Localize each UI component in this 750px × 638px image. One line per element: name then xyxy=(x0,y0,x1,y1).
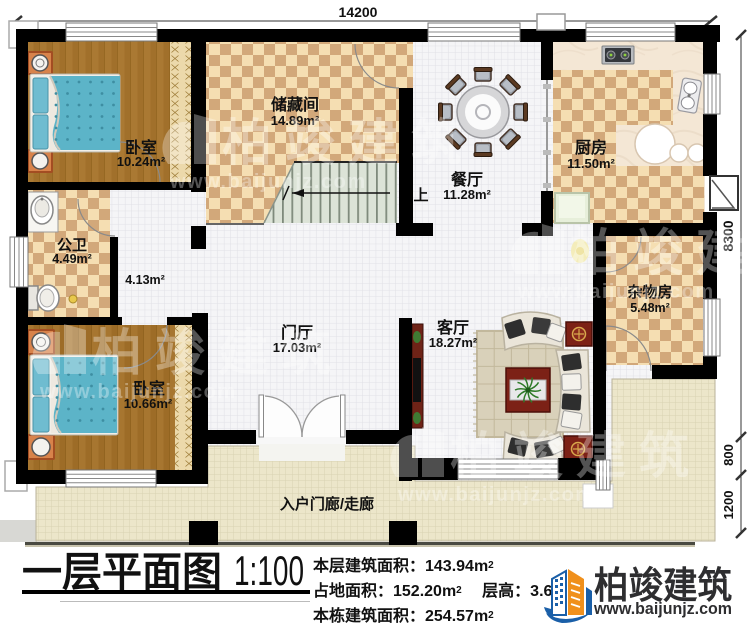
svg-text:www.baijunjz.com: www.baijunjz.com xyxy=(397,484,595,506)
svg-text:10.24m²: 10.24m² xyxy=(117,154,166,169)
svg-text:占地面积：152.20m2 层高：3.6m: 占地面积：152.20m2 层高：3.6m xyxy=(313,581,567,600)
svg-text:www.baijunjz.com: www.baijunjz.com xyxy=(169,171,367,193)
svg-text:5.48m²: 5.48m² xyxy=(630,301,670,315)
svg-text:本栋建筑面积：254.57m2: 本栋建筑面积：254.57m2 xyxy=(313,606,494,625)
svg-text:11.28m²: 11.28m² xyxy=(443,187,491,202)
svg-text:柏竣建筑: 柏竣建筑 xyxy=(92,325,344,381)
svg-text:4.13m²: 4.13m² xyxy=(125,273,165,287)
svg-text:柏竣建筑: 柏竣建筑 xyxy=(570,225,750,281)
svg-text:上: 上 xyxy=(413,187,428,204)
svg-text:柏竣建筑: 柏竣建筑 xyxy=(450,428,702,484)
svg-text:4.49m²: 4.49m² xyxy=(52,252,92,266)
svg-text:18.27m²: 18.27m² xyxy=(429,335,478,350)
svg-text:www.baijunjz.com: www.baijunjz.com xyxy=(593,600,732,618)
svg-text:14200: 14200 xyxy=(339,4,378,20)
svg-text:1:100: 1:100 xyxy=(234,547,304,594)
svg-text:www.baijunjz.com: www.baijunjz.com xyxy=(517,281,715,303)
svg-text:800: 800 xyxy=(721,444,736,466)
svg-text:本层建筑面积：143.94m2: 本层建筑面积：143.94m2 xyxy=(313,556,494,575)
svg-text:www.baijunjz.com: www.baijunjz.com xyxy=(39,381,237,403)
svg-text:1200: 1200 xyxy=(721,491,736,520)
svg-text:一层平面图: 一层平面图 xyxy=(22,549,222,595)
svg-text:11.50m²: 11.50m² xyxy=(567,156,615,171)
svg-text:厨房: 厨房 xyxy=(575,138,607,157)
svg-text:入户门廊/走廊: 入户门廊/走廊 xyxy=(280,495,374,513)
svg-text:储藏间: 储藏间 xyxy=(270,95,319,114)
svg-text:柏竣建筑: 柏竣建筑 xyxy=(222,115,474,171)
